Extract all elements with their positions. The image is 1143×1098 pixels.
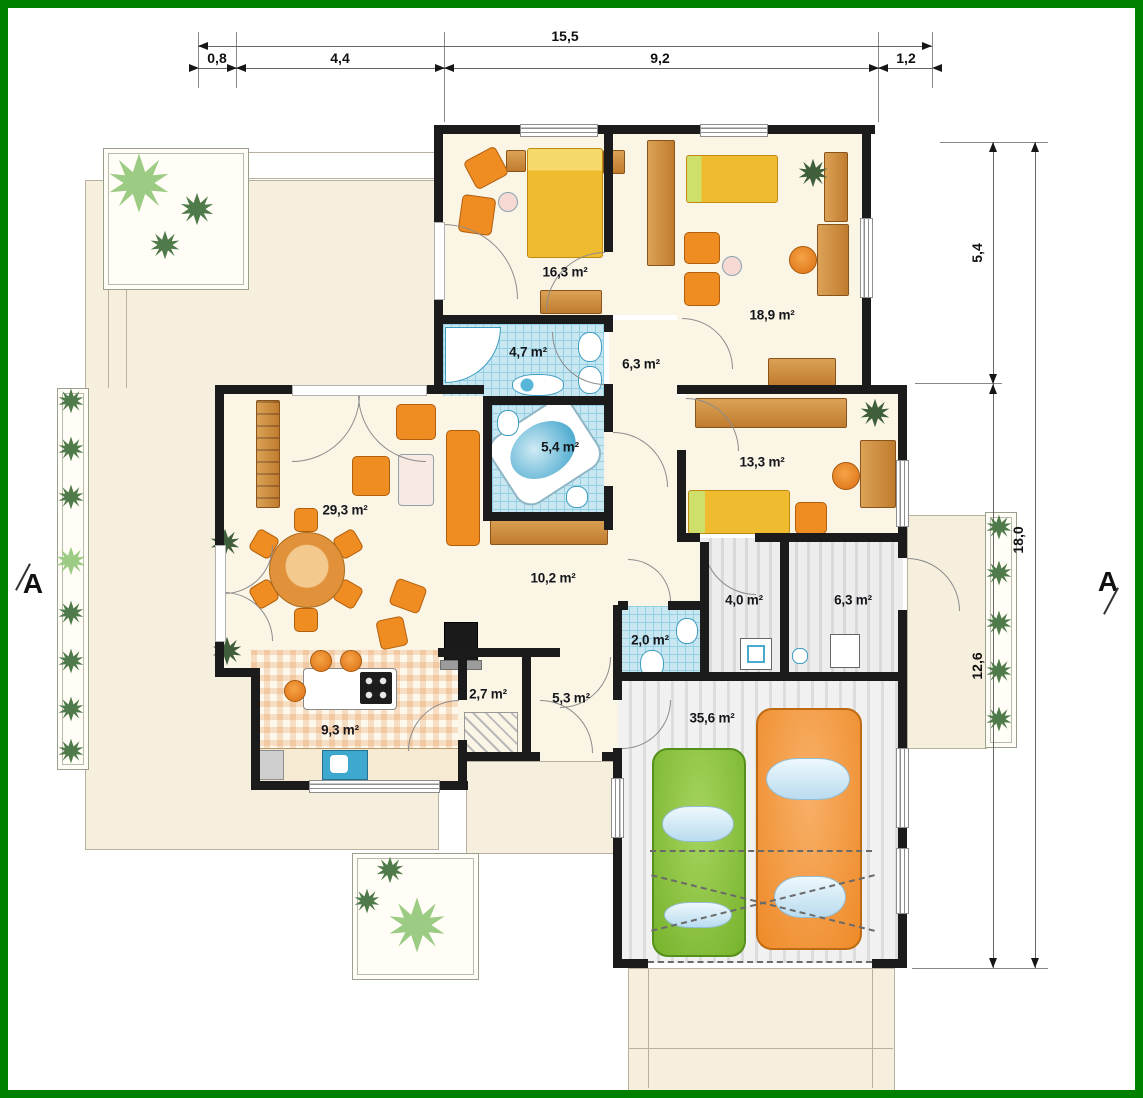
plant-icon [58,648,84,674]
wall [434,125,443,222]
driveway-line [628,1048,893,1049]
dim-right-seg-1: 5,4 [969,243,985,262]
plant-icon [986,560,1012,586]
room-label-bathroom-2: 5,4 m² [541,440,579,455]
plant-icon [58,484,84,510]
extension-line [198,32,199,88]
dimension-line-right-outer [1035,142,1036,968]
wall [604,486,613,530]
wall [438,781,468,790]
plant-icon [354,888,380,914]
plant-icon [860,398,890,428]
fridge [256,750,284,780]
arrowhead [989,958,997,968]
kitchen-sink-basin [330,755,348,773]
coffee-table [398,454,434,506]
driveway [628,968,895,1092]
sideboard [490,517,608,545]
plant-icon [798,158,828,188]
room-label-hall-upper: 6,3 m² [622,357,660,372]
wall [677,533,700,542]
desk-chair [832,462,860,490]
plant-icon [376,856,404,884]
plant-icon [58,436,84,462]
window [309,780,440,793]
armchair [684,272,720,306]
arrowhead [444,64,454,72]
plant-icon [58,388,84,414]
room-label-bedroom-2: 18,9 m² [749,308,794,323]
wall [438,648,560,657]
pergola-line [247,152,434,153]
wall [613,672,907,681]
door-opening [434,222,445,300]
wall [483,512,613,521]
arrowhead [227,64,237,72]
driveway-line [648,968,649,1088]
wall [755,533,907,542]
wall [613,605,622,700]
wall [438,315,613,324]
wall [766,125,875,134]
arrowhead [189,64,199,72]
plant-icon [58,738,84,764]
car-orange-windshield [766,758,850,800]
wall [596,125,700,134]
room-label-kitchen: 9,3 m² [321,723,359,738]
wall [251,781,309,790]
nightstand [795,502,827,534]
arrowhead [989,142,997,152]
wall [613,748,622,778]
window [896,748,909,828]
dim-top-total: 15,5 [551,28,578,44]
wall [700,542,709,681]
room-label-living-room: 29,3 m² [322,503,367,518]
side-table [722,256,742,276]
arrowhead [922,42,932,50]
dining-chair [294,608,318,632]
dimension-line-segments-top [198,68,932,69]
wall [522,657,531,761]
side-path [907,515,987,749]
window [896,460,909,527]
wall [604,134,613,252]
arrowhead [989,384,997,394]
wall [677,450,686,542]
wall [458,740,467,781]
bed [527,148,603,258]
wall [425,385,484,394]
armchair [684,232,720,264]
wall [613,836,622,959]
wall [483,396,613,405]
daybed [686,155,778,203]
room-label-wc: 2,0 m² [631,633,669,648]
sink [676,618,698,644]
plant-icon [986,658,1012,684]
plant-icon [388,896,446,954]
wall [434,298,443,394]
dining-table [269,532,345,608]
utility-sink [792,648,808,664]
dim-right-total: 18,0 [1010,526,1026,553]
room-label-pantry: 2,7 m² [469,687,507,702]
extension-line [912,968,1048,969]
desk [860,440,896,508]
arrowhead [236,64,246,72]
plant-icon [108,152,170,214]
plant-icon [986,706,1012,732]
armchair [352,456,390,496]
double-sink [512,374,564,396]
wall [215,385,292,394]
room-label-hall-entry: 5,3 m² [552,691,590,706]
wall [780,542,789,677]
wardrobe [647,140,675,266]
wall [862,296,871,394]
window [896,848,909,914]
arrowhead [869,64,879,72]
bar-stool [340,650,362,672]
door-opening [292,385,427,396]
section-marker-left: A [23,568,43,600]
window [700,124,768,137]
wall [898,912,907,968]
plant-icon [56,546,86,576]
room-label-bathroom-1: 4,7 m² [509,345,547,360]
dimension-line-right-inner [993,142,994,968]
door-opening [215,545,226,642]
wall [677,385,907,394]
room-label-garage: 35,6 m² [689,711,734,726]
window [860,218,873,298]
fireplace-cabinet [256,400,280,508]
wall [251,668,260,790]
plant-icon [58,600,84,626]
toilet [497,410,519,436]
room-label-hall-main: 10,2 m² [530,571,575,586]
wall [458,657,467,700]
arrowhead [198,42,208,50]
boiler [830,634,860,668]
entry-porch [466,761,624,854]
car-green-windshield [662,806,734,842]
wall [862,125,871,218]
wall [434,125,520,134]
dim-top-seg-2: 4,4 [330,50,349,66]
arrowhead [435,64,445,72]
wall [613,959,648,968]
bar-stool [310,650,332,672]
fence-line [108,287,109,388]
sink [566,486,588,508]
pouf [375,615,409,650]
window [611,778,624,838]
floor-plan-canvas: 15,5 0,8 4,4 9,2 1,2 5,4 12,6 18,0 A A [0,0,1143,1098]
wall [618,601,628,610]
wall [898,826,907,848]
sofa [446,430,480,546]
bed [688,490,790,534]
plant-icon [150,230,180,260]
wall [483,396,492,521]
dim-right-seg-2: 12,6 [969,652,985,679]
wall [604,384,613,432]
arrowhead [878,64,888,72]
wall [898,385,907,460]
desk [817,224,849,296]
window [520,124,598,137]
garage-door-dashed [648,961,872,963]
arrowhead [989,374,997,384]
room-label-utility-laundry: 4,0 m² [725,593,763,608]
dimension-line-total-top [198,46,932,47]
arrowhead [1031,142,1039,152]
desk-chair [789,246,817,274]
room-label-utility-boiler: 6,3 m² [834,593,872,608]
dim-top-seg-3: 9,2 [650,50,669,66]
garage-door-dashed [650,850,872,852]
nightstand [506,150,526,172]
dining-chair [294,508,318,532]
arrowhead [932,64,942,72]
plant-icon [180,192,214,226]
room-label-bedroom-3: 13,3 m² [739,455,784,470]
plant-icon [58,696,84,722]
extension-line [932,32,933,88]
stove [360,672,392,704]
side-table [498,192,518,212]
washing-machine [740,638,772,670]
dim-top-seg-1: 0,8 [207,50,226,66]
room-label-bedroom-1: 16,3 m² [542,265,587,280]
plant-icon [986,514,1012,540]
fence-line [126,287,127,388]
wall [604,322,613,332]
extension-line [236,32,237,88]
arrowhead [1031,958,1039,968]
wall [215,385,224,545]
bar-stool [284,680,306,702]
pergola-line [247,178,434,179]
dresser [768,358,836,386]
driveway-line [872,968,873,1088]
plant-icon [986,610,1012,636]
dim-top-seg-4: 1,2 [896,50,915,66]
